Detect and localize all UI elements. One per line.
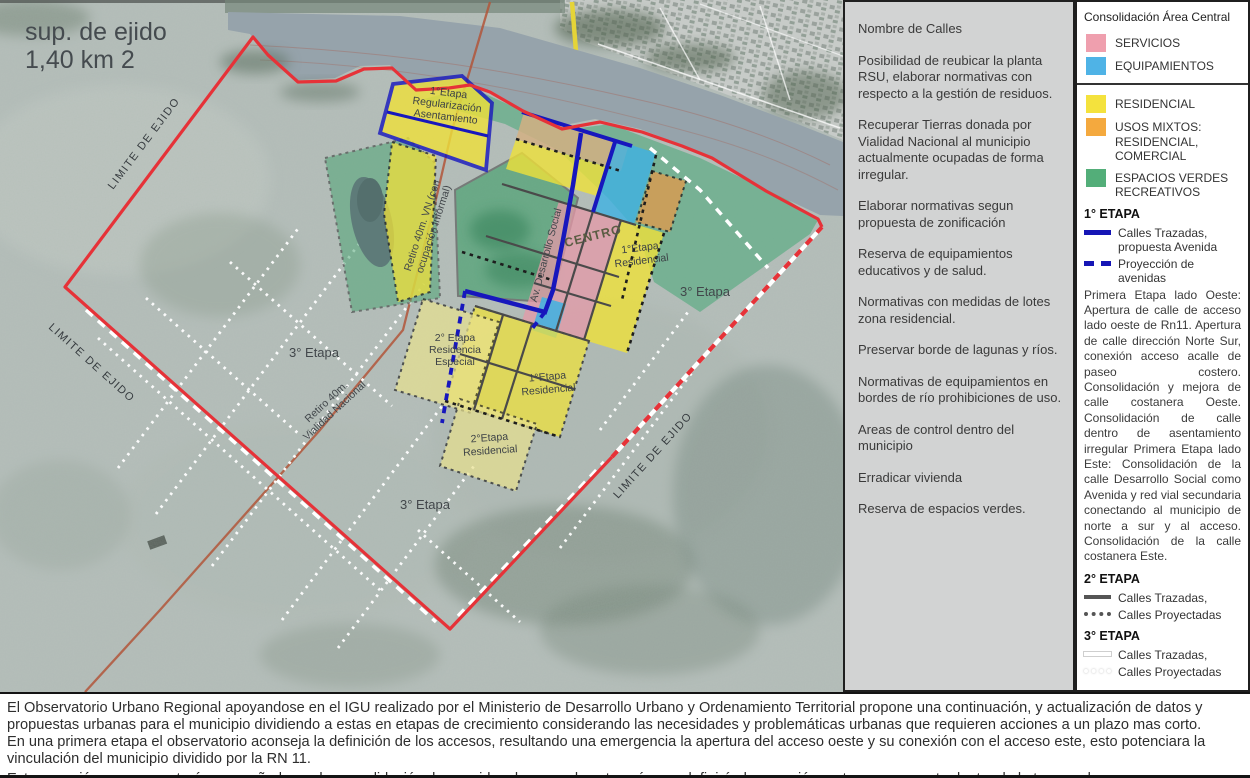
legend-row-espacios-verdes: ESPACIOS VERDES RECREATIVOS [1084,169,1241,200]
map-canvas: sup. de ejido 1,40 km 2 LIMITE DE EJIDO … [0,0,843,692]
etapa2-especial-label: 2° Etapa Residencia Especial [429,332,481,368]
note-item: Areas de control dentro del municipio [858,422,1062,455]
legend-row-equipamientos: EQUIPAMIENTOS [1084,57,1241,75]
equipamientos-label: EQUIPAMIENTOS [1115,57,1214,74]
note-item: Nombre de Calles [858,21,1062,38]
surface-label-line1: sup. de ejido [25,18,167,46]
servicios-swatch [1086,34,1106,52]
note-item: Reserva de espacios verdes. [858,501,1062,518]
residencial-label: RESIDENCIAL [1115,95,1195,112]
etapa1-paragraph: Primera Etapa lado Oeste: Apertura de ca… [1084,288,1241,565]
legend-divider [1077,83,1248,85]
laguna [357,178,383,222]
etapa3-calles-trazadas-label: Calles Trazadas, [1118,648,1207,662]
etapa3-calles-proyectadas-label: Calles Proyectadas [1118,665,1221,679]
etapa1-proyeccion: Proyección de avenidas [1084,257,1241,285]
etapa1-proyeccion-label: Proyección de avenidas [1118,257,1241,285]
etapa2-title: 2° ETAPA [1084,572,1241,586]
usos-mixtos-swatch [1086,118,1106,136]
note-item: Recuperar Tierras donada por Vialidad Na… [858,117,1062,183]
gray-solid-line-icon [1084,595,1111,599]
etapa2-calles-trazadas: Calles Trazadas, [1084,591,1241,605]
white-solid-line-icon [1084,652,1111,656]
note-item: Normativas con medidas de lotes zona res… [858,294,1062,327]
note-item: Reserva de equipamientos educativos y de… [858,246,1062,279]
note-item: Preservar borde de lagunas y ríos. [858,342,1062,359]
etapa3-label-sur: 3° Etapa [400,497,451,512]
gray-dotted-line-icon [1084,612,1111,616]
etapa3-label-este: 3° Etapa [680,284,731,299]
legend-title: Consolidación Área Central [1084,10,1241,24]
usos-mixtos-label: USOS MIXTOS: RESIDENCIAL, COMERCIAL [1115,118,1241,164]
white-dotted-line-icon [1084,669,1111,673]
note-item: Erradicar vivienda [858,470,1062,487]
etapa3-calles-trazadas: Calles Trazadas, [1084,648,1241,662]
footer-line: El Observatorio Urbano Regional apoyando… [7,700,1244,717]
footer-line: En una primera etapa el observatorio aco… [7,734,1244,751]
espacios-verdes-swatch [1086,169,1106,187]
residencial-swatch [1086,95,1106,113]
aerial-map: sup. de ejido 1,40 km 2 LIMITE DE EJIDO … [0,0,843,692]
etapa1-title: 1° ETAPA [1084,207,1241,221]
svg-text:Residencia: Residencia [429,344,481,356]
svg-text:Especial: Especial [435,356,475,368]
surface-label-line2: 1,40 km 2 [25,46,135,74]
equipamientos-swatch [1086,57,1106,75]
etapa3-label-oeste: 3° Etapa [289,345,340,360]
legend-row-usos-mixtos: USOS MIXTOS: RESIDENCIAL, COMERCIAL [1084,118,1241,164]
footer-text: El Observatorio Urbano Regional apoyando… [0,692,1250,778]
etapa2-calles-trazadas-label: Calles Trazadas, [1118,591,1207,605]
blue-dashed-line-icon [1084,261,1111,266]
etapa2-calles-proyectadas-label: Calles Proyectadas [1118,608,1221,622]
note-item: Posibilidad de reubicar la planta RSU, e… [858,53,1062,103]
legend-row-servicios: SERVICIOS [1084,34,1241,52]
svg-text:2° Etapa: 2° Etapa [435,332,476,344]
urban-plan-sheet: sup. de ejido 1,40 km 2 LIMITE DE EJIDO … [0,0,1250,778]
notes-panel: Nombre de Calles Posibilidad de reubicar… [843,0,1075,692]
note-item: Normativas de equipamientos en bordes de… [858,374,1062,407]
espacios-verdes-label: ESPACIOS VERDES RECREATIVOS [1115,169,1241,200]
footer-line: propuestas urbanas para el municipio div… [7,717,1244,734]
etapa3-calles-proyectadas: Calles Proyectadas [1084,665,1241,679]
footer-line: Esta conexión a su vez estará acompañado… [7,771,1244,778]
blue-solid-line-icon [1084,230,1111,235]
legend-row-residencial: RESIDENCIAL [1084,95,1241,113]
legend-panel: Consolidación Área Central SERVICIOS EQU… [1075,0,1250,692]
footer-line: vinculación del municipio dividido por l… [7,751,1244,768]
etapa1-calles-trazadas-label: Calles Trazadas, propuesta Avenida [1118,226,1241,254]
servicios-label: SERVICIOS [1115,34,1180,51]
note-item: Elaborar normativas segun propuesta de z… [858,198,1062,231]
etapa3-title: 3° ETAPA [1084,629,1241,643]
etapa1-calles-trazadas: Calles Trazadas, propuesta Avenida [1084,226,1241,254]
etapa2-calles-proyectadas: Calles Proyectadas [1084,608,1241,622]
